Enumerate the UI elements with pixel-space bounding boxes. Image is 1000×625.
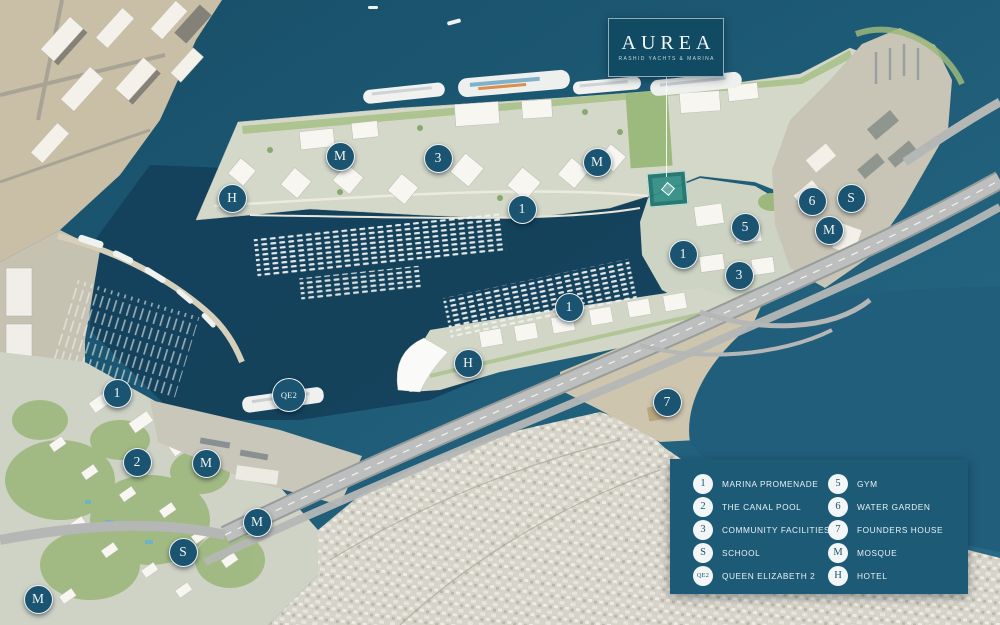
legend-item: 1MARINA PROMENADE [693, 472, 828, 495]
legend-badge: H [828, 566, 848, 586]
legend-label: COMMUNITY FACILITIES [722, 525, 830, 535]
legend-column-left: 1MARINA PROMENADE2THE CANAL POOL3COMMUNI… [693, 472, 828, 594]
legend-item: 2THE CANAL POOL [693, 495, 828, 518]
legend-item: 6WATER GARDEN [828, 495, 943, 518]
masterplan-map: AUREA RASHID YACHTS & MARINA M3MH16S5M13… [0, 0, 1000, 625]
legend-label: QUEEN ELIZABETH 2 [722, 571, 815, 581]
map-marker-h[interactable]: H [454, 349, 483, 378]
map-marker-m[interactable]: M [583, 148, 612, 177]
brand-logo: AUREA RASHID YACHTS & MARINA [608, 18, 724, 77]
legend-label: MARINA PROMENADE [722, 479, 818, 489]
map-legend: 1MARINA PROMENADE2THE CANAL POOL3COMMUNI… [670, 459, 968, 594]
legend-badge: 3 [693, 520, 713, 540]
map-marker-6[interactable]: 6 [798, 187, 827, 216]
legend-badge: S [693, 543, 713, 563]
legend-label: GYM [857, 479, 878, 489]
legend-item: 5GYM [828, 472, 943, 495]
legend-column-right: 5GYM6WATER GARDEN7FOUNDERS HOUSEMMOSQUEH… [828, 472, 943, 594]
map-marker-s[interactable]: S [837, 184, 866, 213]
legend-item: 3COMMUNITY FACILITIES [693, 518, 828, 541]
map-marker-2[interactable]: 2 [123, 448, 152, 477]
map-marker-1[interactable]: 1 [555, 293, 584, 322]
map-marker-5[interactable]: 5 [731, 213, 760, 242]
legend-label: FOUNDERS HOUSE [857, 525, 943, 535]
legend-badge: 7 [828, 520, 848, 540]
brand-subtitle: RASHID YACHTS & MARINA [617, 57, 715, 62]
legend-item: QE2QUEEN ELIZABETH 2 [693, 564, 828, 587]
plot-diamond-icon [660, 182, 674, 196]
map-marker-3[interactable]: 3 [725, 261, 754, 290]
map-marker-1[interactable]: 1 [508, 195, 537, 224]
logo-leader-line [666, 75, 667, 177]
legend-item: SSCHOOL [693, 541, 828, 564]
map-marker-1[interactable]: 1 [103, 379, 132, 408]
map-marker-m[interactable]: M [815, 216, 844, 245]
legend-label: THE CANAL POOL [722, 502, 801, 512]
brand-title: AUREA [617, 33, 716, 53]
map-marker-m[interactable]: M [24, 585, 53, 614]
highlighted-plot[interactable] [647, 170, 689, 207]
legend-item: HHOTEL [828, 564, 943, 587]
legend-label: WATER GARDEN [857, 502, 930, 512]
map-marker-1[interactable]: 1 [669, 240, 698, 269]
legend-badge: 1 [693, 474, 713, 494]
map-marker-3[interactable]: 3 [424, 144, 453, 173]
legend-item: MMOSQUE [828, 541, 943, 564]
legend-label: HOTEL [857, 571, 887, 581]
map-marker-qe2[interactable]: QE2 [272, 378, 306, 412]
map-marker-s[interactable]: S [169, 538, 198, 567]
legend-label: MOSQUE [857, 548, 897, 558]
map-marker-m[interactable]: M [326, 142, 355, 171]
legend-badge: 5 [828, 474, 848, 494]
map-marker-m[interactable]: M [243, 508, 272, 537]
map-marker-7[interactable]: 7 [653, 388, 682, 417]
legend-item: 7FOUNDERS HOUSE [828, 518, 943, 541]
legend-badge: QE2 [693, 566, 713, 586]
map-marker-m[interactable]: M [192, 449, 221, 478]
legend-label: SCHOOL [722, 548, 760, 558]
legend-badge: M [828, 543, 848, 563]
legend-badge: 6 [828, 497, 848, 517]
map-marker-h[interactable]: H [218, 184, 247, 213]
legend-badge: 2 [693, 497, 713, 517]
